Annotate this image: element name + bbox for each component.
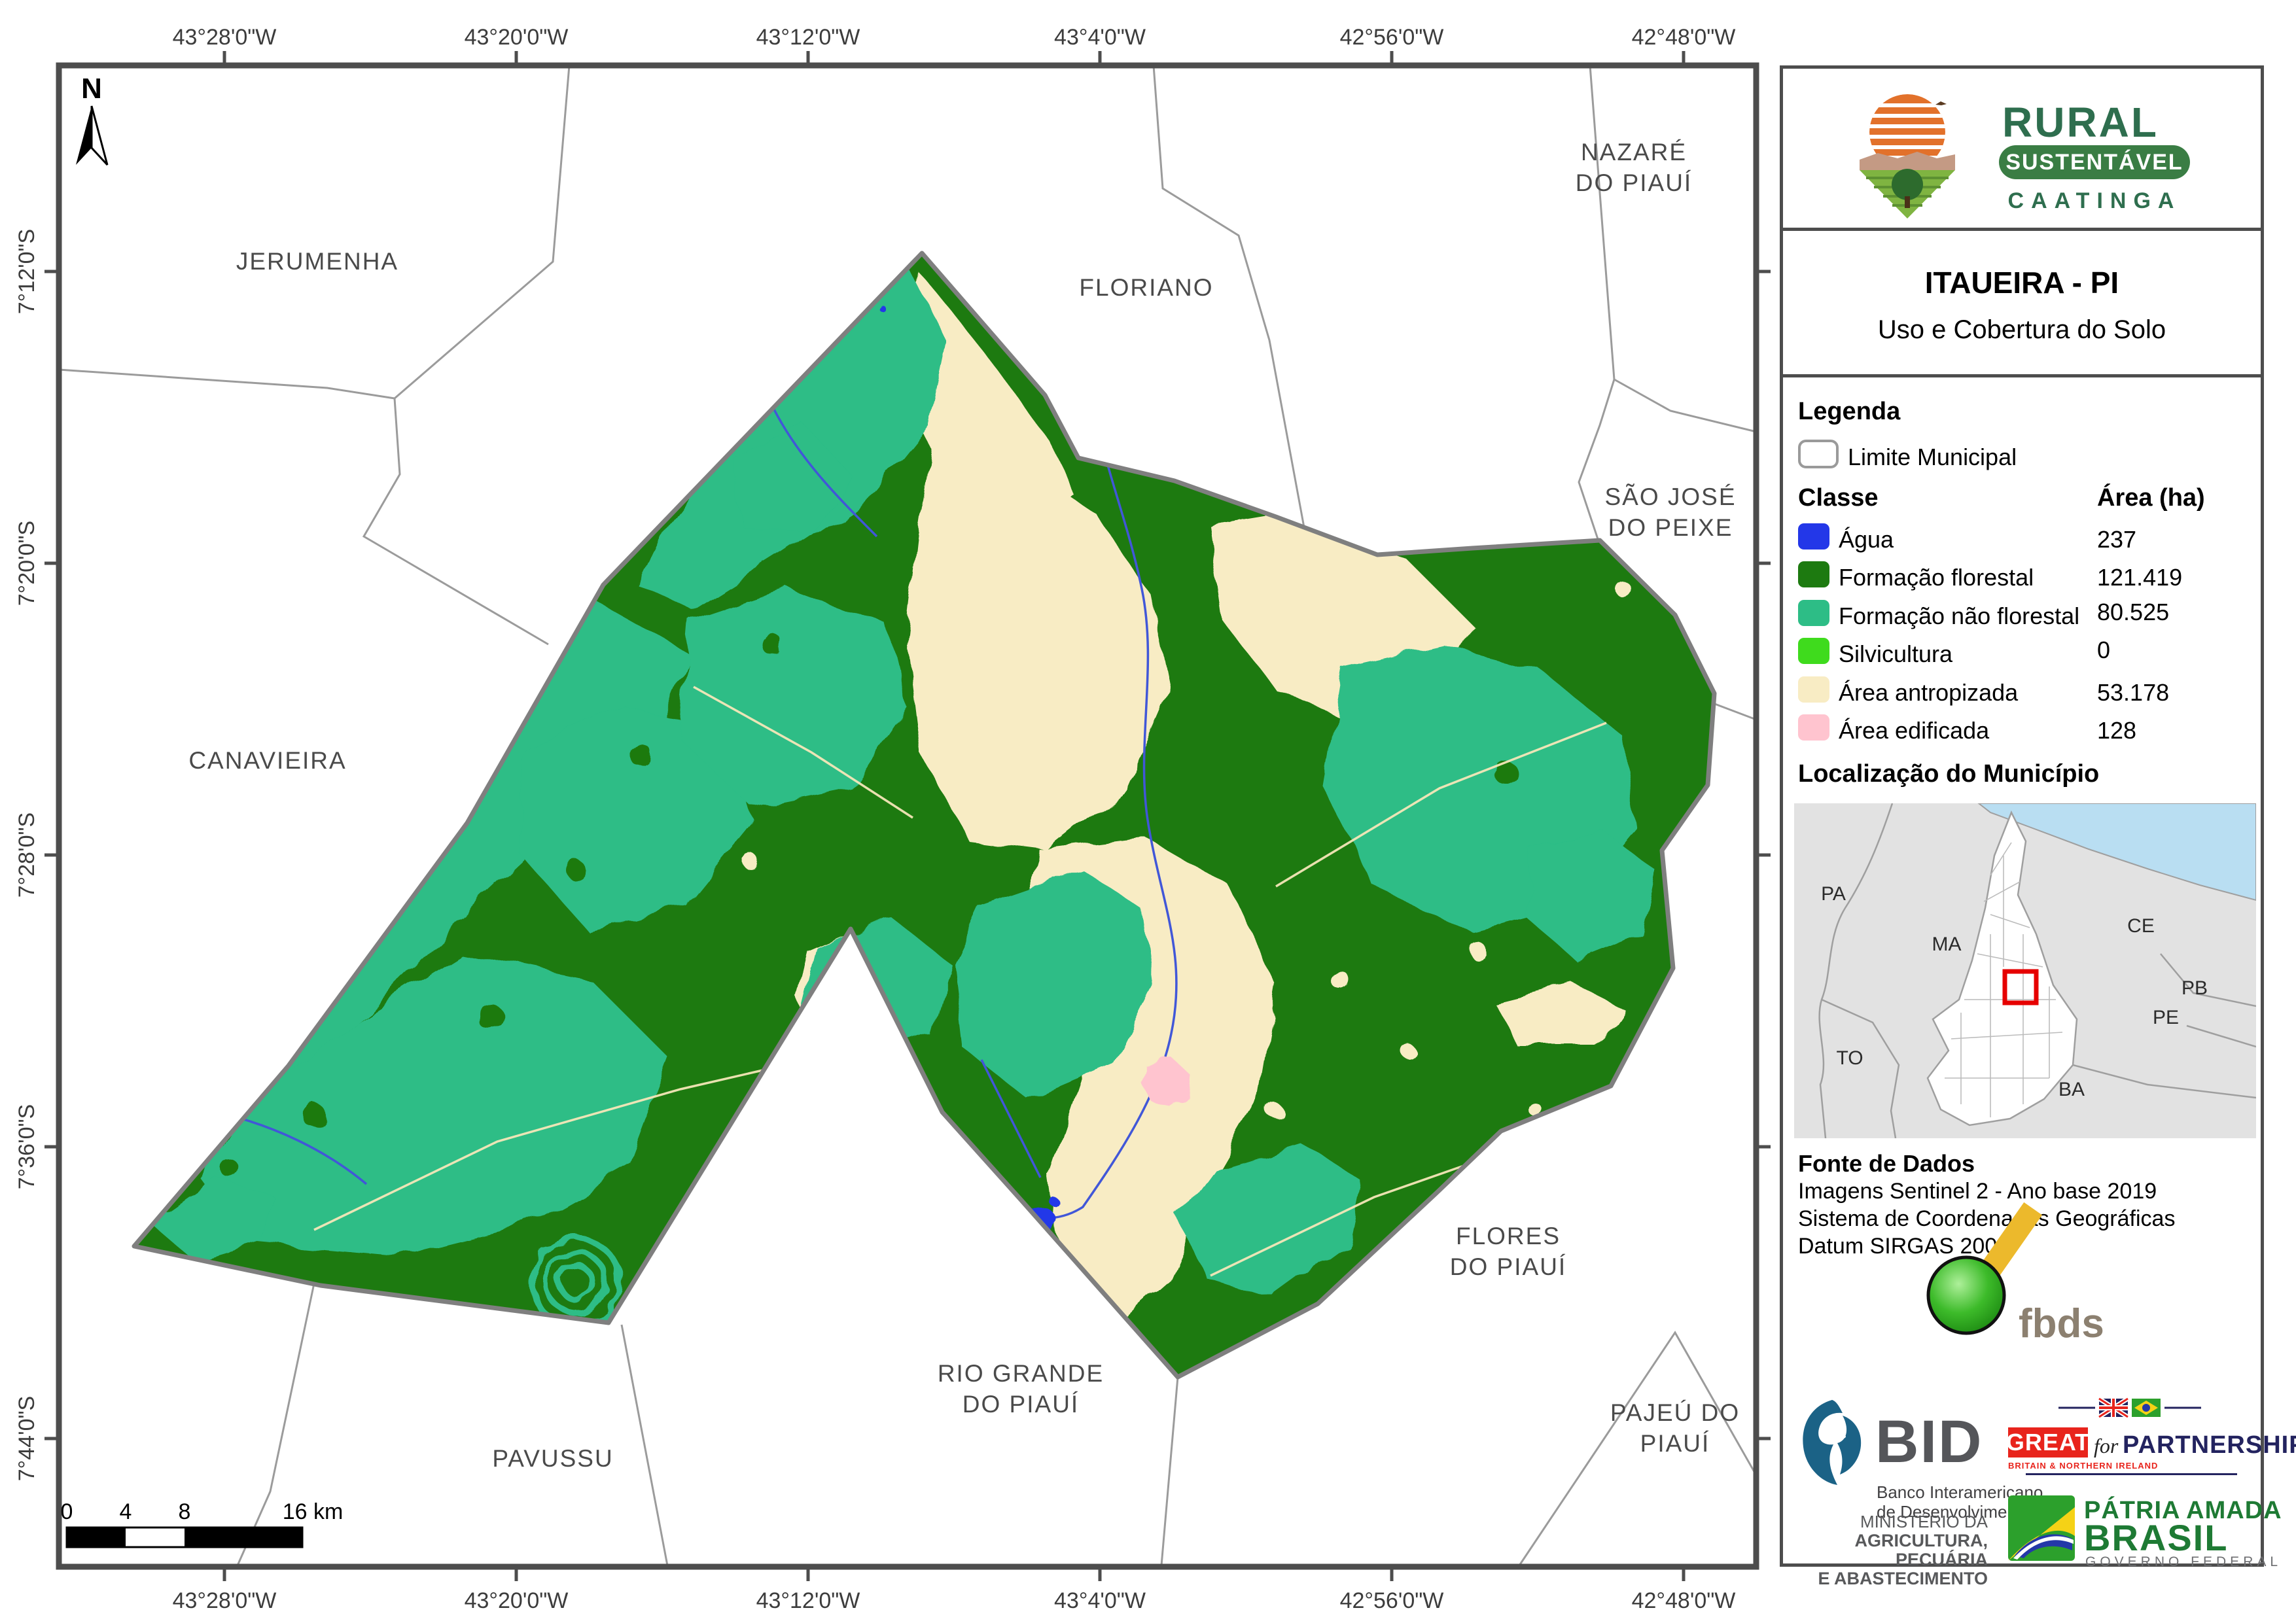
lon-top-1: 43°20'0"W — [465, 25, 569, 50]
label-pajeu-2: PIAUÍ — [1640, 1430, 1710, 1457]
sidebar-title-box — [1780, 228, 2264, 377]
lon-top-2: 43°12'0"W — [756, 25, 860, 50]
legend-label-nao-florestal: Formação não florestal — [1839, 602, 2079, 630]
fonte-heading: Fonte de Dados — [1798, 1150, 1975, 1178]
uk-flag-icon — [2099, 1399, 2128, 1417]
rural-logo-sustentavel: SUSTENTÁVEL — [2005, 150, 2183, 175]
bird-icon — [1935, 101, 1947, 105]
rural-logo-pill: SUSTENTÁVEL — [1999, 145, 2190, 179]
lon-bot-2: 43°12'0"W — [756, 1588, 860, 1613]
inset-label-pa: PA — [1821, 883, 1846, 905]
lon-bot-5: 42°48'0"W — [1632, 1588, 1736, 1613]
britain-ni-text: BRITAIN & NORTHERN IRELAND — [2008, 1461, 2158, 1471]
lon-top-4: 42°56'0"W — [1340, 25, 1444, 50]
inset-locator-map[interactable]: PA MA TO CE PB PE BA — [1794, 803, 2256, 1138]
label-riogrande-2: DO PIAUÍ — [963, 1391, 1079, 1418]
north-arrow-label: N — [81, 73, 102, 105]
label-floriano: FLORIANO — [1079, 274, 1213, 301]
scale-bar: 0 4 8 16 km — [61, 1499, 344, 1547]
legend-area-antropizada: 53.178 — [2097, 679, 2169, 707]
scale-16: 16 km — [283, 1499, 344, 1524]
map-subtitle: Uso e Cobertura do Solo — [1783, 315, 2261, 345]
legend-swatch-antropizada — [1798, 676, 1829, 703]
legend-area-silvicultura: 0 — [2097, 637, 2110, 664]
main-map[interactable]: JERUMENHA FLORIANO NAZARÉ DO PIAUÍ SÃO J… — [0, 0, 1773, 1623]
label-nazare-1: NAZARÉ — [1581, 139, 1687, 166]
legend-label-antropizada: Área antropizada — [1839, 679, 2018, 707]
lat-1: 7°20'0"S — [14, 521, 39, 606]
legend-swatch-agua — [1798, 523, 1829, 550]
label-jerumenha: JERUMENHA — [236, 248, 398, 275]
legend-swatch-silvicultura — [1798, 638, 1829, 664]
label-pajeu-1: PAJEÚ DO — [1610, 1399, 1740, 1426]
legend-area-nao-florestal: 80.525 — [2097, 599, 2169, 626]
legend-label-agua: Água — [1839, 526, 1894, 553]
great-logo-box: GREAT — [2008, 1427, 2088, 1457]
label-riogrande-1: RIO GRANDE — [938, 1360, 1104, 1387]
label-nazare-2: DO PIAUÍ — [1576, 169, 1692, 196]
limite-municipal-swatch — [1798, 440, 1839, 468]
brasil-text: BRASIL — [2084, 1516, 2228, 1559]
lat-0: 7°12'0"S — [14, 229, 39, 314]
label-flores-1: FLORES — [1456, 1223, 1561, 1249]
scale-0: 0 — [61, 1499, 73, 1524]
legend-label-edificada: Área edificada — [1839, 717, 1989, 744]
great-for-text: for — [2094, 1434, 2118, 1458]
tree-icon — [1892, 169, 1923, 200]
scale-8: 8 — [179, 1499, 191, 1524]
label-flores-2: DO PIAUÍ — [1450, 1253, 1566, 1280]
uk-br-flags — [2058, 1397, 2206, 1418]
rural-logo-caatinga: CAATINGA — [1999, 188, 2190, 214]
legend-area-agua: 237 — [2097, 526, 2136, 553]
legend-col-classe: Classe — [1798, 484, 1879, 512]
lon-bot-3: 43°4'0"W — [1054, 1588, 1146, 1613]
great-divider-rule — [2026, 1473, 2237, 1475]
bid-logo-text: BID — [1875, 1408, 1983, 1476]
map-title: ITAUEIRA - PI — [1783, 265, 2261, 300]
legend-swatch-nao-florestal — [1798, 600, 1829, 626]
municipality-raster — [0, 0, 1773, 1623]
label-canavieira: CANAVIEIRA — [188, 747, 346, 774]
inset-label-ma: MA — [1932, 934, 1962, 955]
rural-logo-word: RURAL — [2002, 98, 2159, 147]
label-saojose-2: DO PEIXE — [1608, 514, 1733, 541]
scale-4: 4 — [120, 1499, 132, 1524]
lat-4: 7°44'0"S — [14, 1396, 39, 1481]
lon-bot-4: 42°56'0"W — [1340, 1588, 1444, 1613]
limite-municipal-label: Limite Municipal — [1848, 444, 2017, 471]
brazil-flag-icon — [2132, 1399, 2161, 1417]
lon-top-3: 43°4'0"W — [1054, 25, 1146, 50]
great-logo-text: GREAT — [2006, 1429, 2090, 1456]
legend-col-area: Área (ha) — [2097, 484, 2205, 512]
brasil-flag-logo — [2008, 1495, 2075, 1561]
ministerio-line-1: MINISTÉRIO DA — [1798, 1512, 1988, 1531]
fbds-logo-text: fbds — [2019, 1300, 2104, 1347]
legend-label-florestal: Formação florestal — [1839, 564, 2034, 591]
lon-top-0: 43°28'0"W — [173, 25, 277, 50]
rural-sustentavel-logo-emblem — [1852, 80, 1963, 222]
legend-heading: Legenda — [1798, 398, 1900, 426]
bid-logo-icon — [1797, 1397, 1867, 1488]
ministerio-line-2: AGRICULTURA, PECUÁRIA — [1855, 1531, 1988, 1569]
ministerio-line-3: E ABASTECIMENTO — [1818, 1569, 1988, 1588]
legend-area-edificada: 128 — [2097, 717, 2136, 744]
inset-label-to: TO — [1836, 1047, 1863, 1069]
lat-2: 7°28'0"S — [14, 812, 39, 898]
localizacao-heading: Localização do Município — [1798, 760, 2099, 788]
lon-bot-0: 43°28'0"W — [173, 1588, 277, 1613]
lon-bot-1: 43°20'0"W — [465, 1588, 569, 1613]
inset-label-ce: CE — [2127, 915, 2155, 937]
map-layout-page: JERUMENHA FLORIANO NAZARÉ DO PIAUÍ SÃO J… — [0, 0, 2296, 1623]
lon-top-5: 42°48'0"W — [1632, 25, 1736, 50]
north-arrow: N — [76, 73, 107, 165]
ministerio-block: MINISTÉRIO DA AGRICULTURA, PECUÁRIA E AB… — [1798, 1512, 1988, 1588]
lat-3: 7°36'0"S — [14, 1104, 39, 1189]
inset-label-ba: BA — [2058, 1079, 2085, 1100]
partnership-text: PARTNERSHIP — [2123, 1431, 2296, 1459]
legend-area-florestal: 121.419 — [2097, 564, 2182, 591]
label-pavussu: PAVUSSU — [492, 1445, 613, 1472]
legend-label-silvicultura: Silvicultura — [1839, 640, 1952, 668]
inset-label-pe: PE — [2153, 1007, 2179, 1028]
label-saojose-1: SÃO JOSÉ — [1604, 483, 1736, 510]
legend-swatch-florestal — [1798, 561, 1829, 587]
governo-federal-text: GOVERNO FEDERAL — [2085, 1554, 2282, 1570]
legend-swatch-edificada — [1798, 714, 1829, 741]
inset-label-pb: PB — [2181, 977, 2208, 999]
